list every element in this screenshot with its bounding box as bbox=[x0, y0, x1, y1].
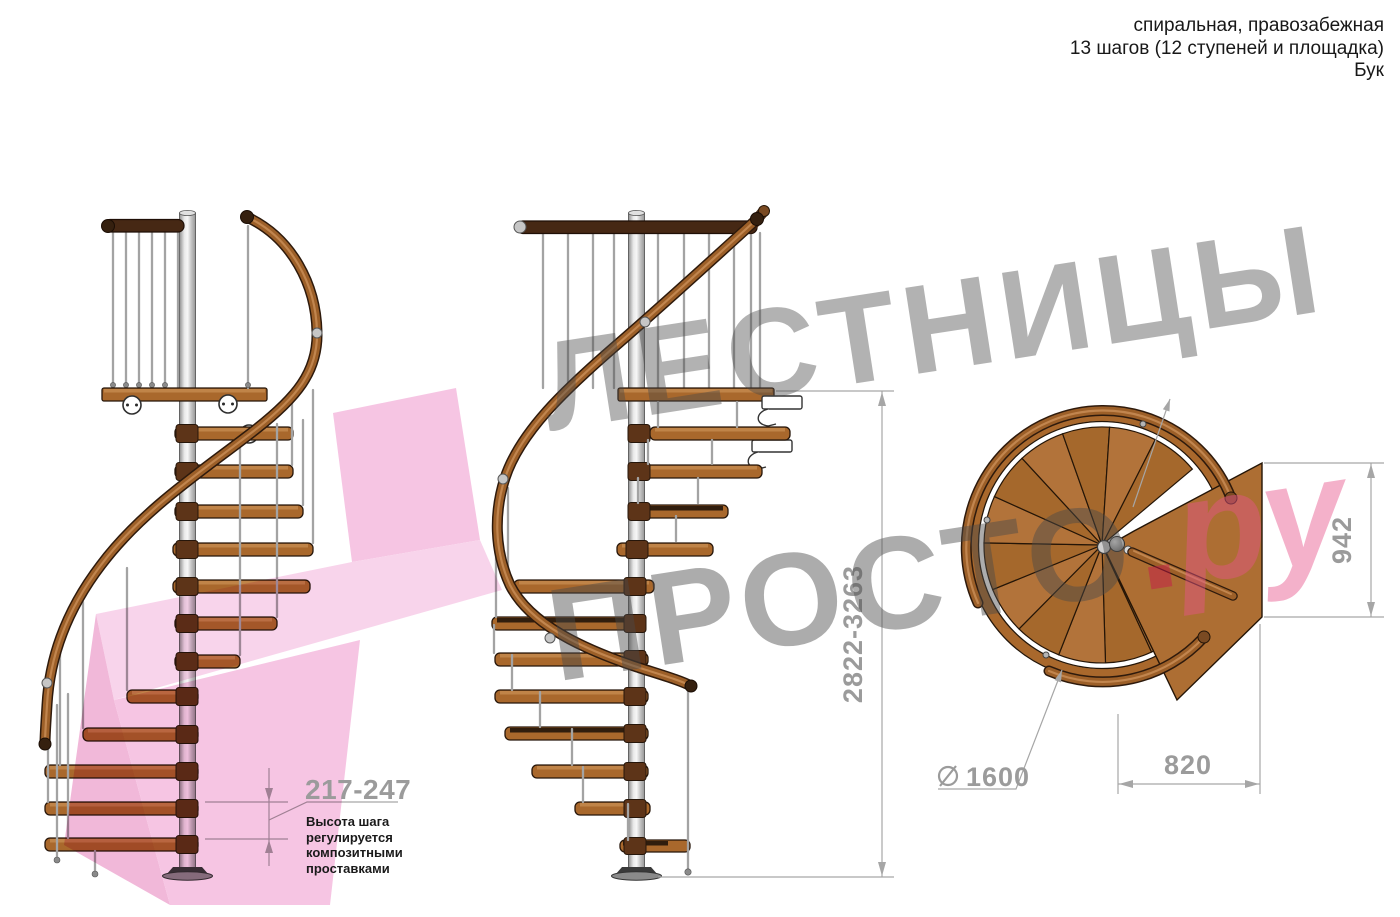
title-block: спиральная, правозабежная 13 шагов (12 с… bbox=[1070, 15, 1384, 83]
title-material: Бук bbox=[1070, 60, 1384, 83]
title-steps: 13 шагов (12 ступеней и площадка) bbox=[1070, 38, 1384, 61]
title-type: спиральная, правозабежная bbox=[1070, 15, 1384, 38]
step-height-label: 217-247 bbox=[305, 774, 411, 806]
step-height-note: Высота шага регулируется композитными пр… bbox=[306, 814, 403, 876]
watermark-arrow bbox=[0, 0, 1400, 917]
drawing-canvas: 2822-3263 942 820 bbox=[0, 0, 1400, 917]
